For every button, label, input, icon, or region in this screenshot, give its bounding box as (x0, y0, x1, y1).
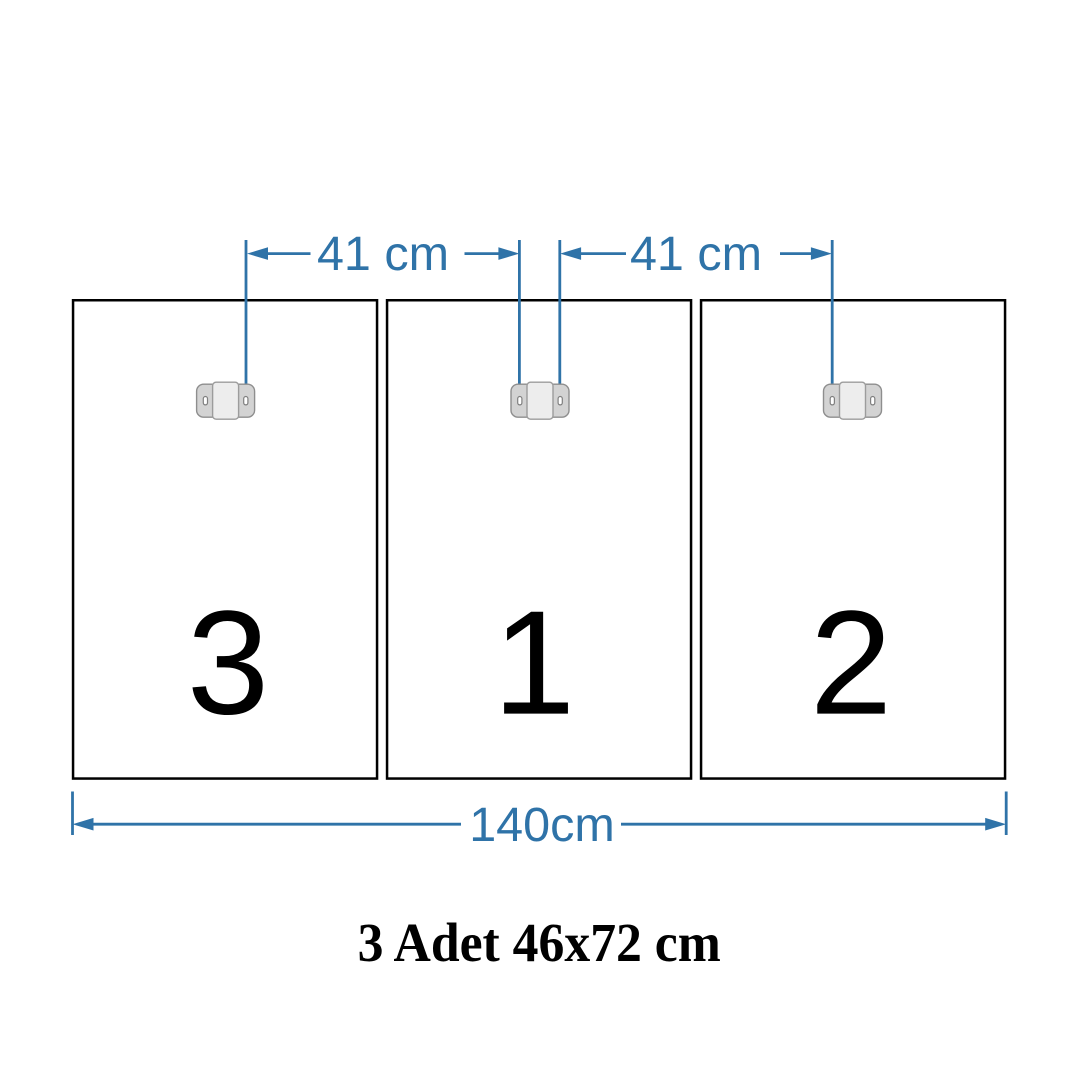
svg-text:3 Adet 46x72 cm: 3 Adet 46x72 cm (358, 912, 721, 974)
svg-text:1: 1 (493, 581, 575, 746)
svg-text:41 cm: 41 cm (317, 227, 449, 281)
svg-text:140cm: 140cm (469, 798, 615, 852)
svg-text:2: 2 (810, 581, 892, 746)
svg-text:3: 3 (187, 581, 269, 746)
svg-text:41 cm: 41 cm (630, 227, 762, 281)
